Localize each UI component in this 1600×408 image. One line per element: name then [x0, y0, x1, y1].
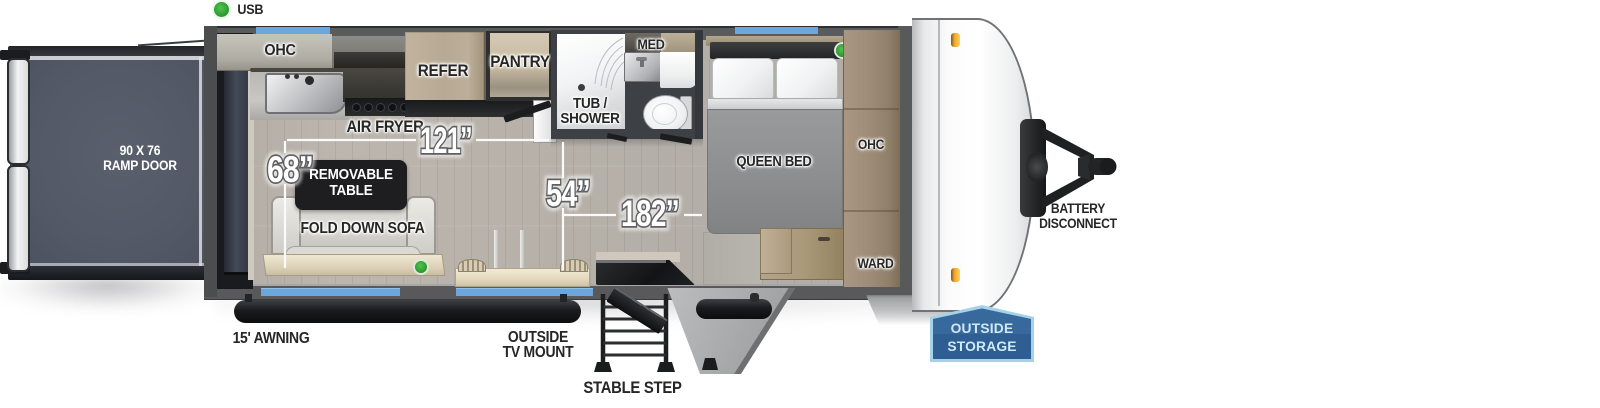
svg-text:182”: 182”	[621, 193, 679, 234]
svg-text:121”: 121”	[420, 120, 472, 161]
svg-text:68”: 68”	[267, 149, 313, 190]
svg-text:54”: 54”	[546, 173, 590, 214]
